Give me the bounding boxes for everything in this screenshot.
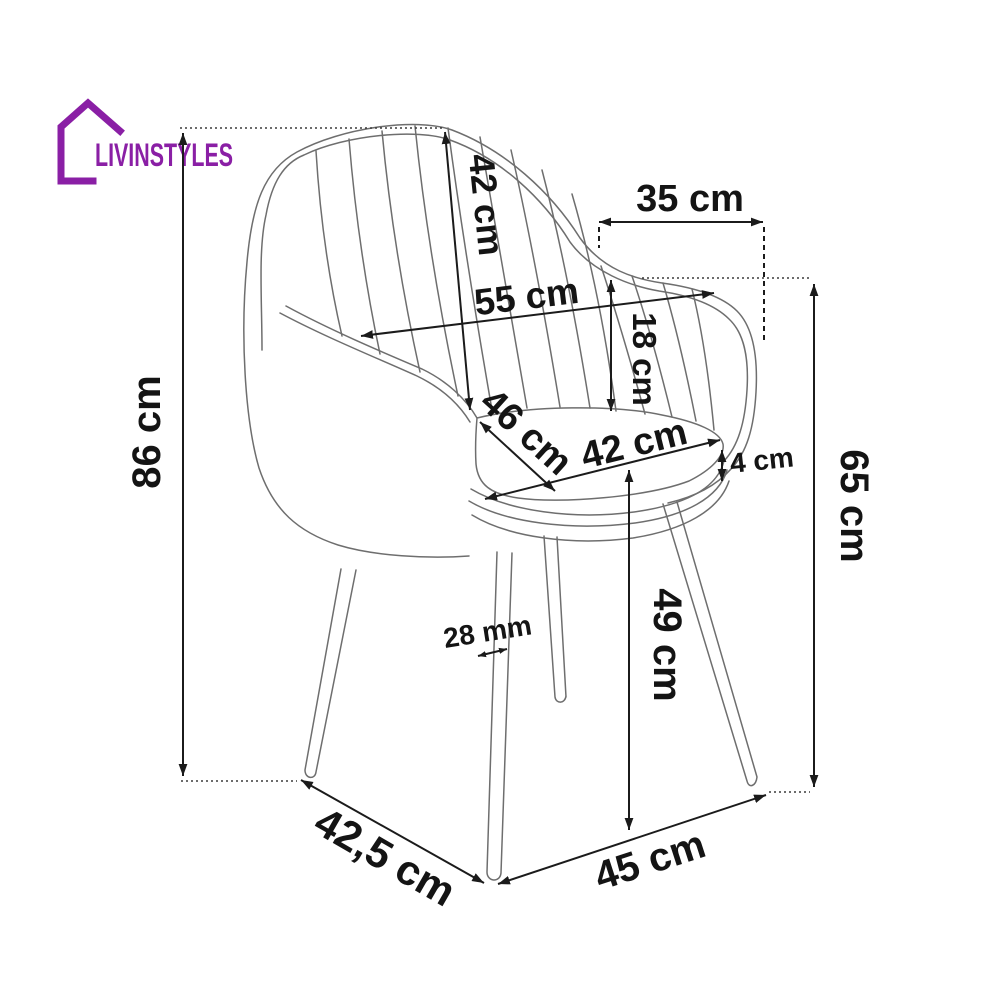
leg-back-left bbox=[305, 569, 356, 777]
dimension-annotations: 86 cm 42 cm 35 cm 55 cm 18 cm 46 cm 42 c… bbox=[125, 128, 876, 915]
seat-depth-label: 46 cm bbox=[472, 380, 580, 483]
seat-height-label: 49 cm bbox=[645, 588, 689, 701]
pleat-line bbox=[349, 139, 380, 354]
dimension-diagram-page: LIVINSTYLES bbox=[0, 0, 1000, 1000]
brand-logo: LIVINSTYLES bbox=[61, 103, 233, 181]
pleat-line bbox=[692, 289, 714, 430]
dim-base-depth: 42,5 cm bbox=[301, 780, 484, 915]
base-depth-label: 42,5 cm bbox=[307, 798, 464, 916]
left-armrest-piping bbox=[286, 306, 477, 418]
armrest-height-label: 65 cm bbox=[832, 449, 876, 562]
dim-backrest-height: 42 cm bbox=[445, 132, 512, 410]
brand-name: LIVINSTYLES bbox=[95, 137, 233, 173]
dim-seat-height: 49 cm bbox=[629, 470, 689, 830]
dimension-line bbox=[478, 649, 507, 656]
seat-width-label: 42 cm bbox=[577, 411, 692, 478]
overall-width-label: 55 cm bbox=[472, 270, 581, 323]
backrest-height-label: 42 cm bbox=[461, 152, 512, 258]
leg-front-left bbox=[487, 552, 512, 880]
leg-back-right bbox=[544, 536, 566, 702]
armrest-span-label: 35 cm bbox=[636, 178, 744, 220]
dim-front-width: 45 cm bbox=[498, 795, 766, 899]
backrest-above-seat-label: 18 cm bbox=[626, 312, 663, 406]
cushion-thickness-label: 4 cm bbox=[728, 441, 795, 479]
total-height-label: 86 cm bbox=[125, 375, 169, 488]
dim-cushion-thickness: 4 cm bbox=[722, 441, 795, 481]
pleat-line bbox=[316, 151, 342, 336]
dim-total-height: 86 cm bbox=[125, 128, 444, 781]
dim-armrest-span-top: 35 cm bbox=[599, 178, 764, 344]
pleat-line bbox=[382, 131, 420, 372]
pleat-line bbox=[415, 126, 458, 396]
seat-base-piping bbox=[472, 481, 729, 541]
dim-armrest-height: 65 cm bbox=[642, 278, 876, 792]
dimension-diagram: LIVINSTYLES bbox=[0, 0, 1000, 1000]
dim-leg-thickness: 28 mm bbox=[441, 609, 533, 656]
dim-seat-depth: 46 cm bbox=[472, 380, 580, 491]
leg-thickness-label: 28 mm bbox=[441, 609, 533, 653]
